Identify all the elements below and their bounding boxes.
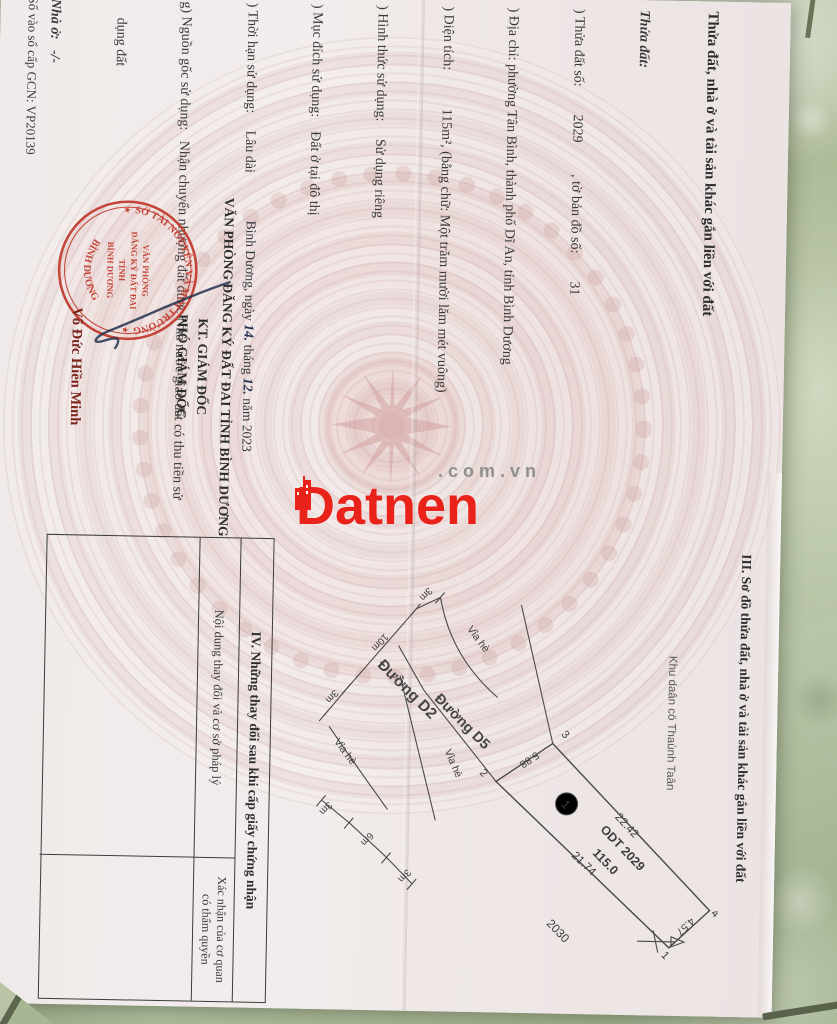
d2-width-3m-b: 3m <box>323 687 341 705</box>
parcel-diagram: Đường D2 Đường D5 Vỉa hè Vỉa hè Vỉa hè 3… <box>306 556 724 984</box>
tick <box>435 592 444 603</box>
section-3-title: III. Sơ đồ thửa đất, nhà ở và tài sản kh… <box>730 554 754 984</box>
changes-cell-empty <box>40 535 200 858</box>
north-arrow-icon <box>637 930 684 953</box>
construction-line: Công trình xây dựng khác: -/- <box>0 0 1 563</box>
road-d2-label: Đường D2 <box>374 656 440 722</box>
tick <box>342 684 351 695</box>
front-width-3m-a: 3m <box>317 799 335 817</box>
vertex-2: 2 <box>477 767 490 780</box>
edge-5-88: 5.88 <box>517 749 541 770</box>
road-d5-label: Đường D5 <box>431 691 493 753</box>
d2-width-3m-a: 3m <box>417 585 435 603</box>
building-icon <box>294 476 320 510</box>
confirmation-cell-empty <box>37 855 194 1001</box>
section-2-title: Thửa đất, nhà ở và tài sản khác gắn liền… <box>691 11 724 576</box>
tick <box>319 710 328 721</box>
section-2-subtitle: Thửa đất: <box>622 10 655 575</box>
sidewalk-label-3: Vỉa hè <box>331 736 359 767</box>
signature-stroke <box>71 257 238 370</box>
handwritten-month: 12. <box>240 378 255 395</box>
neighbor-parcel: 2030 <box>544 916 573 945</box>
datnen-watermark: .com.vn Datnen <box>296 462 541 532</box>
month-label: tháng <box>241 344 257 374</box>
column-header-confirmation: Xác nhận của cơ quan có thẩm quyền <box>192 858 235 1002</box>
section-4-changes-table: IV. Những thay đổi sau khi cấp giấy chứn… <box>38 534 275 1003</box>
vertex-1: 1 <box>659 949 672 962</box>
vertex-4: 4 <box>708 907 721 920</box>
column-header-content: Nội dung thay đổi và cơ sở pháp lý <box>194 538 240 859</box>
watermark-brand: Datnen <box>296 480 541 532</box>
sidewalk-label-2: Vỉa hè <box>442 747 465 779</box>
stamp-star-left: ★ <box>123 206 133 214</box>
edge-4-57: 4.57 <box>674 915 697 938</box>
registry-number: Số vào sổ cấp GCN: VP20139 <box>22 0 41 155</box>
year-label: năm 2023 <box>239 398 255 452</box>
place-label: Bình Dương, ngày <box>242 221 259 322</box>
parcel-boundary <box>493 742 713 948</box>
road-d5-edge <box>519 605 556 744</box>
d2-width-10m: 10m <box>369 631 390 653</box>
vertex-3: 3 <box>559 728 572 741</box>
parcel-number-line: ) Thửa đất số: 2029 , tờ bản đồ số: 31 <box>557 9 590 574</box>
handwritten-day: 14. <box>241 324 256 341</box>
tick <box>411 604 420 615</box>
sidewalk-label-1: Vỉa hè <box>464 624 492 655</box>
